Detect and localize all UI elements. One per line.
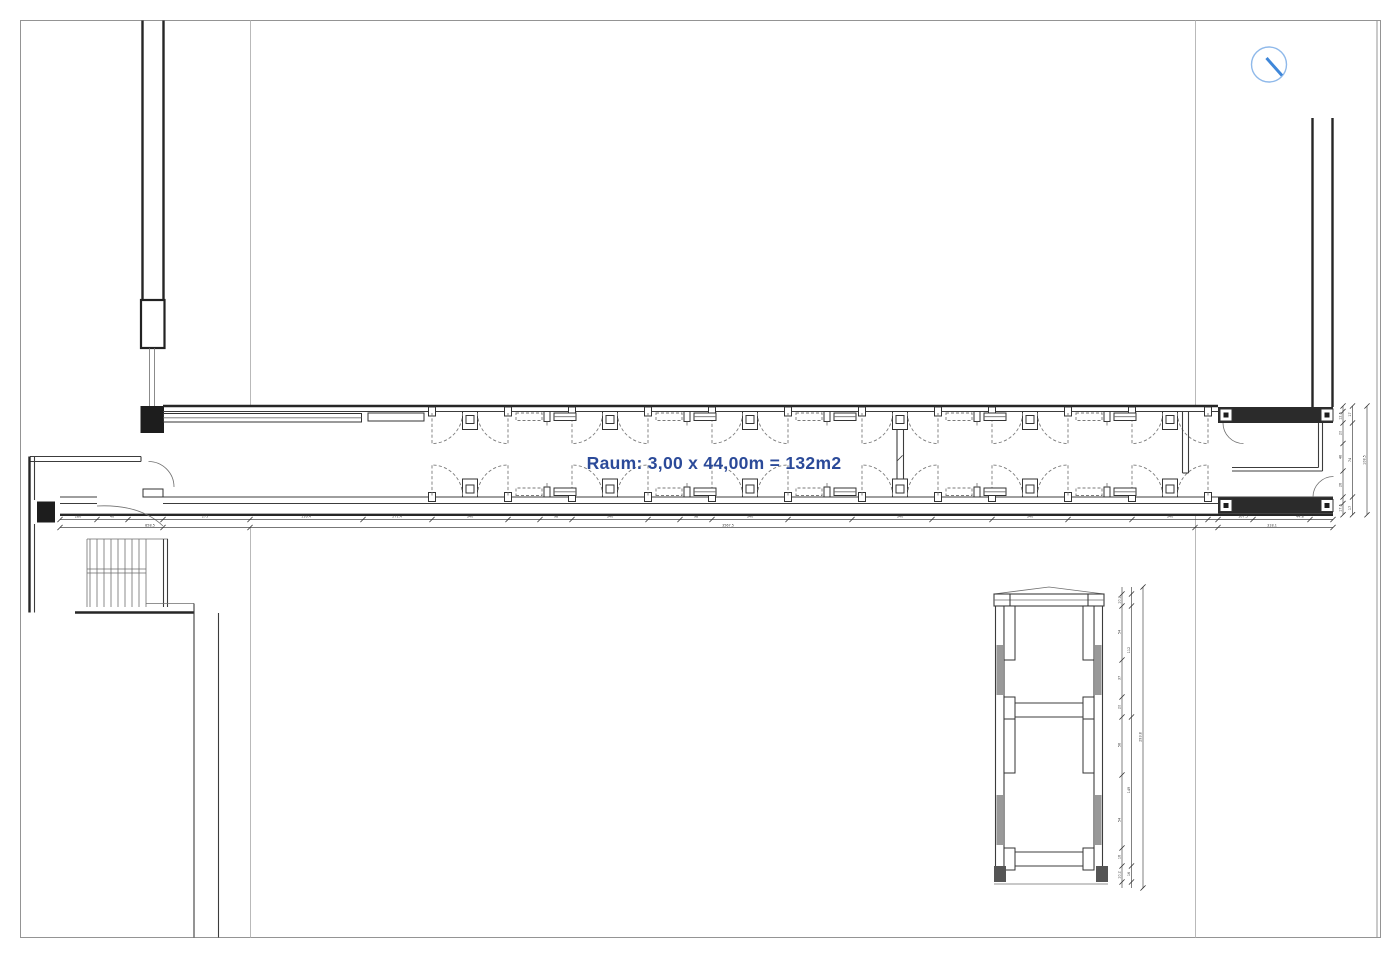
dim-label: 98 xyxy=(554,514,558,518)
dim-label: 17 xyxy=(1348,506,1352,510)
upper-right-wall xyxy=(1313,118,1333,407)
dim-label: 107.5 xyxy=(1238,514,1248,518)
dimension-chain-right: 12.5 20 48 26 17.5 17 74 17 108.5 xyxy=(1338,403,1369,517)
dim-label: 340 xyxy=(1167,514,1173,518)
door-modules-top xyxy=(429,407,1212,444)
floor-plan-drawing: Raum: 3,00 x 44,00m = 132m2 xyxy=(0,0,1400,957)
wall-column xyxy=(141,406,165,433)
upper-left-wall xyxy=(141,21,165,434)
dim-label: 17 xyxy=(1348,412,1352,416)
dimension-chain-horizontal: 280 40 275 116.4 271.4 340 98 340 98 340… xyxy=(57,514,1335,530)
dim-label: 40 xyxy=(110,514,114,518)
dim-label: 112 xyxy=(1127,647,1131,653)
floor-plan-canvas: Raum: 3,00 x 44,00m = 132m2 xyxy=(0,0,1400,957)
dim-label: 58 xyxy=(1117,743,1121,747)
dim-label: 271.4 xyxy=(392,514,402,518)
dim-label: 10.2 xyxy=(1117,596,1121,604)
dim-label: 3567.5 xyxy=(722,523,734,527)
door-swing-arc xyxy=(1223,423,1244,444)
dim-label: 108.5 xyxy=(1362,455,1366,465)
dim-label: 149 xyxy=(1127,787,1131,793)
dim-label: 340 xyxy=(897,514,903,518)
staircase xyxy=(75,506,194,613)
dim-label: 54 xyxy=(1117,630,1121,634)
lower-left-wing xyxy=(30,457,219,938)
dim-label: 54 xyxy=(1117,818,1121,822)
corridor-partition-stub xyxy=(1183,412,1189,474)
wall-cabinet xyxy=(368,413,424,421)
corridor-right-end xyxy=(1218,407,1334,514)
dim-label: 293.8 xyxy=(1138,732,1142,742)
dim-label: 17.5 xyxy=(1338,504,1342,512)
dim-label: 20 xyxy=(1338,431,1342,435)
dimension-chain-shaft: 10.2 54 37 20 58 54 16 10.2 112 149 16 2… xyxy=(1117,584,1145,890)
dim-label: 280 xyxy=(75,514,81,518)
dim-label: 275 xyxy=(202,514,208,518)
dim-label: 16 xyxy=(1117,855,1121,859)
dim-label: 26 xyxy=(1338,483,1342,487)
dim-label: 98 xyxy=(694,514,698,518)
dim-label: 44.8 xyxy=(1296,514,1304,518)
room-area-label: Raum: 3,00 x 44,00m = 132m2 xyxy=(587,453,842,473)
dim-label: 74 xyxy=(1348,458,1352,462)
corridor-bottom-wall xyxy=(60,497,1333,515)
dim-label: 16 xyxy=(1127,872,1131,876)
corridor-partition xyxy=(897,430,904,480)
north-indicator-icon xyxy=(1252,47,1287,82)
dim-label: 37 xyxy=(1117,676,1121,680)
dim-label: 340 xyxy=(467,514,473,518)
dim-label: 12.5 xyxy=(1338,412,1342,420)
dim-label: 340 xyxy=(607,514,613,518)
dim-label: 318.1 xyxy=(1267,523,1277,527)
dim-label: 10.2 xyxy=(1117,871,1121,879)
dim-label: 340 xyxy=(747,514,753,518)
door-swing-arc xyxy=(1313,477,1334,498)
axis-grid-lines xyxy=(251,21,1196,938)
dim-label: 116.4 xyxy=(301,514,311,518)
dim-label: 340 xyxy=(1027,514,1033,518)
dim-label: 20 xyxy=(1117,705,1121,709)
corridor-left-entry xyxy=(30,457,174,498)
dim-label: 48 xyxy=(1338,455,1342,459)
door-swing-arc xyxy=(149,462,175,488)
elevator-shaft xyxy=(994,587,1108,884)
dim-label: 858.5 xyxy=(145,523,155,527)
wall-column xyxy=(37,502,55,523)
